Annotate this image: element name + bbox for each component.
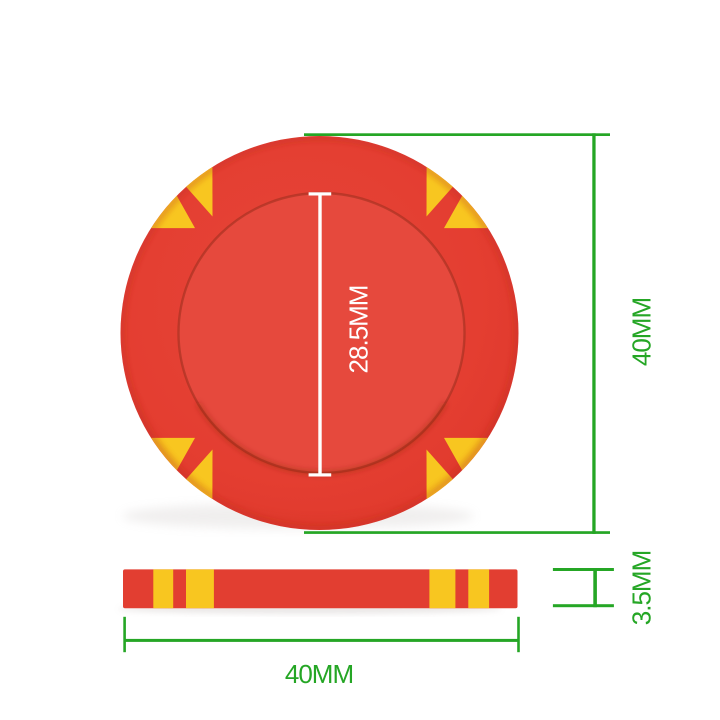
- svg-text:40MM: 40MM: [285, 659, 353, 689]
- svg-text:28.5MM: 28.5MM: [344, 286, 374, 374]
- svg-text:40MM: 40MM: [627, 298, 657, 366]
- svg-text:3.5MM: 3.5MM: [627, 551, 657, 625]
